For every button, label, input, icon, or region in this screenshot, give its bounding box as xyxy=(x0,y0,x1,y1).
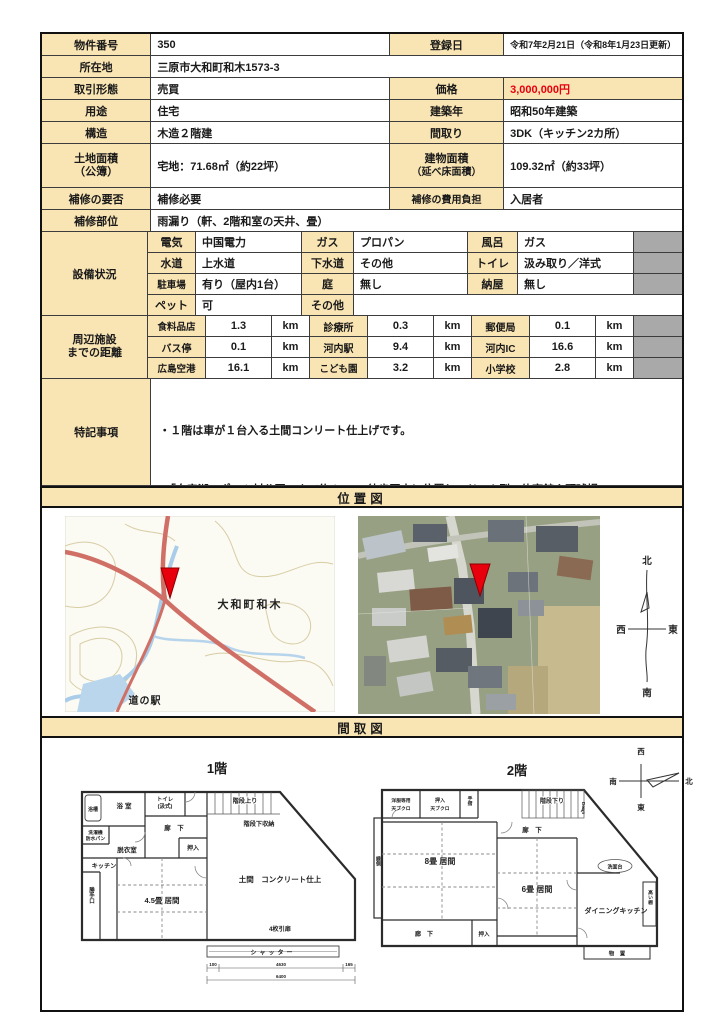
facility-unit: km xyxy=(434,358,472,379)
kitchen-label: キッチン xyxy=(92,863,117,870)
property-number-value: 350 xyxy=(151,34,390,56)
top-closet-label-line2: 天ブクロ xyxy=(430,805,449,812)
facility-name: バス停 xyxy=(148,337,206,358)
map-compass: 北 西 東 南 xyxy=(614,550,680,700)
hallway-label: 廊 下 xyxy=(164,823,184,832)
facility-unit: km xyxy=(596,337,634,358)
building-area-label-line2: （延べ床面積） xyxy=(411,166,481,179)
washer-label-line2: 防水パン xyxy=(86,835,106,842)
layout-label: 間取り xyxy=(390,122,504,144)
filler-cell xyxy=(634,232,682,253)
rail-label: 手摺 xyxy=(467,795,472,807)
table-row: 補修部位 雨漏り（軒、2階和室の天井、畳） xyxy=(42,210,682,232)
facility-name: 広島空港 xyxy=(148,358,206,379)
floor1-title: 1階 xyxy=(67,758,367,777)
facility-distance: 9.4 xyxy=(368,337,434,358)
dressing-room-label: 脱衣室 xyxy=(117,845,137,854)
sewer-label: 下水道 xyxy=(302,253,354,274)
pet-value: 可 xyxy=(196,295,302,316)
price-value: 3,000,000円 xyxy=(504,78,682,100)
building-area-label: 建物面積 （延べ床面積） xyxy=(390,144,504,188)
doma-label: 土間 コンクリート仕上 xyxy=(239,874,322,884)
facility-name: 食料品店 xyxy=(148,316,206,337)
shutter-label: シャッター xyxy=(250,949,295,957)
compass-north-label: 北 xyxy=(685,776,693,786)
structure-value: 木造２階建 xyxy=(151,122,390,144)
facility-unit: km xyxy=(272,316,310,337)
facility-unit: km xyxy=(434,316,472,337)
compass-south-label: 南 xyxy=(642,687,652,699)
other-label: その他 xyxy=(302,295,354,316)
price-label: 価格 xyxy=(390,78,504,100)
gas-value: プロパン xyxy=(354,232,468,253)
facility-distance: 16.6 xyxy=(530,337,596,358)
facility-distance: 2.8 xyxy=(530,358,596,379)
living-45-label: 4.5畳 居間 xyxy=(144,895,180,905)
compass-needle xyxy=(628,570,666,682)
table-row: 用途 住宅 建築年 昭和50年建築 xyxy=(42,100,682,122)
equipment-row: 水道 上水道 下水道 その他 トイレ 汲み取り／洋式 xyxy=(148,253,682,274)
facility-distance: 1.3 xyxy=(206,316,272,337)
filler-cell xyxy=(634,358,682,379)
notes-title: 特記事項 xyxy=(42,379,151,486)
address-value: 三原市大和町和木1573-3 xyxy=(151,56,682,78)
property-listing-page: 物件番号 350 登録日 令和7年2月21日（令和8年1月23日更新） 所在地 … xyxy=(0,0,724,1024)
equipment-title: 設備状況 xyxy=(42,232,148,316)
back-door-label: 勝手口 xyxy=(88,886,95,905)
equipment-row: ペット 可 その他 xyxy=(148,295,682,316)
roadside-station-label: 道の駅 xyxy=(129,694,162,707)
bath-label: 風呂 xyxy=(468,232,518,253)
table-row: 土地面積 （公簿） 宅地：71.68㎡（約22坪） 建物面積 （延べ床面積） 1… xyxy=(42,144,682,188)
equipment-grid: 電気 中国電力 ガス プロパン 風呂 ガス 水道 上水道 下水道 その他 トイレ… xyxy=(148,232,682,316)
land-area-label-line1: 土地面積 xyxy=(74,153,118,166)
storage-label: 物 置 xyxy=(609,950,626,958)
land-area-label: 土地面積 （公簿） xyxy=(42,144,151,188)
facilities-section: 周辺施設 までの距離 食料品店 1.3 km 診療所 0.3 km 郵便局 0.… xyxy=(42,316,682,379)
floor2-plan: 洋服等用 天ブクロ 押入 天ブクロ 手摺 階段下り Down 廊 下 8畳 居間… xyxy=(362,778,672,1010)
repair-cost-label: 補修の費用負担 xyxy=(390,188,504,210)
map-area-label: 大和町和木 xyxy=(218,597,283,611)
facility-distance: 0.1 xyxy=(206,337,272,358)
repair-part-label: 補修部位 xyxy=(42,210,151,232)
dim-100: 100 xyxy=(209,962,217,967)
filler-cell xyxy=(634,337,682,358)
facilities-grid: 食料品店 1.3 km 診療所 0.3 km 郵便局 0.1 km バス停 0.… xyxy=(148,316,682,379)
toilet-label-line2: (汲式) xyxy=(158,802,173,810)
compass-east-label: 東 xyxy=(667,624,678,636)
table-row: 取引形態 売買 価格 3,000,000円 xyxy=(42,78,682,100)
notes-section: 特記事項 ・１階は車が１台入る土間コンリート仕上げです。 ・「白竜湖スポーツ村公… xyxy=(42,379,682,486)
filler-cell xyxy=(634,316,682,337)
facilities-title: 周辺施設 までの距離 xyxy=(42,316,148,379)
usage-value: 住宅 xyxy=(151,100,390,122)
compass-west-label: 西 xyxy=(616,625,626,636)
washer-label-line1: 洗濯機 xyxy=(88,829,103,836)
toilet-value: 汲み取り／洋式 xyxy=(518,253,634,274)
land-area-label-line2: （公簿） xyxy=(74,166,118,179)
under-stairs-storage-label: 階段下収納 xyxy=(244,820,275,828)
repair-part-value: 雨漏り（軒、2階和室の天井、畳） xyxy=(151,210,682,232)
filler-cell xyxy=(634,274,682,295)
equipment-section: 設備状況 電気 中国電力 ガス プロパン 風呂 ガス 水道 上水道 下水道 その… xyxy=(42,232,682,316)
location-section-header: 位置図 xyxy=(40,486,684,508)
repair-need-label: 補修の要否 xyxy=(42,188,151,210)
transaction-type-value: 売買 xyxy=(151,78,390,100)
high-shelf-label: 高い棚 xyxy=(647,889,652,906)
bath-value: ガス xyxy=(518,232,634,253)
garden-label: 庭 xyxy=(302,274,354,295)
filler-cell xyxy=(634,253,682,274)
registration-date-value: 令和7年2月21日（令和8年1月23日更新） xyxy=(504,34,682,56)
veranda-label: 縁側 xyxy=(375,855,382,867)
sliding-door-label: 4枚引扉 xyxy=(269,925,291,933)
table-row: 構造 木造２階建 間取り 3DK（キッチン2カ所） xyxy=(42,122,682,144)
facility-row: バス停 0.1 km 河内駅 9.4 km 河内IC 16.6 km xyxy=(148,337,682,358)
closet-label: 押入 xyxy=(478,930,490,938)
facility-unit: km xyxy=(596,316,634,337)
property-info-table: 物件番号 350 登録日 令和7年2月21日（令和8年1月23日更新） 所在地 … xyxy=(40,32,684,488)
facilities-title-line2: までの距離 xyxy=(67,347,122,360)
water-value: 上水道 xyxy=(196,253,302,274)
parking-value: 有り（屋内1台） xyxy=(196,274,302,295)
bath-label: 浴室 xyxy=(117,801,134,810)
compass-north-label: 北 xyxy=(642,555,652,567)
build-year-value: 昭和50年建築 xyxy=(504,100,682,122)
gas-label: ガス xyxy=(302,232,354,253)
down-label: Down xyxy=(581,802,586,814)
facility-name: 小学校 xyxy=(472,358,530,379)
compass-west-label: 西 xyxy=(637,747,645,756)
transaction-type-label: 取引形態 xyxy=(42,78,151,100)
land-area-value: 宅地：71.68㎡（約22坪） xyxy=(151,144,390,188)
floor1-plan: 浴槽 浴室 トイレ (汲式) 洗濯機 防水パン 脱衣室 廊 下 押入 階段上り … xyxy=(67,782,367,1004)
repair-cost-value: 入居者 xyxy=(504,188,682,210)
facility-name: こども園 xyxy=(310,358,368,379)
facility-row: 食料品店 1.3 km 診療所 0.3 km 郵便局 0.1 km xyxy=(148,316,682,337)
building-area-value: 109.32㎡（約33坪） xyxy=(504,144,682,188)
facility-unit: km xyxy=(272,337,310,358)
electric-value: 中国電力 xyxy=(196,232,302,253)
facility-distance: 0.3 xyxy=(368,316,434,337)
pet-label: ペット xyxy=(148,295,196,316)
facilities-title-line1: 周辺施設 xyxy=(73,334,117,347)
address-label: 所在地 xyxy=(42,56,151,78)
registration-date-label: 登録日 xyxy=(390,34,504,56)
water-label: 水道 xyxy=(148,253,196,274)
layout-value: 3DK（キッチン2カ所） xyxy=(504,122,682,144)
electric-label: 電気 xyxy=(148,232,196,253)
location-map-area: 大和町和木 道の駅 xyxy=(40,506,684,718)
dim-6400: 6400 xyxy=(276,974,287,979)
table-row: 補修の要否 補修必要 補修の費用負担 入居者 xyxy=(42,188,682,210)
floorplan-area: 1階 2階 西 北 東 南 xyxy=(40,736,684,1012)
facility-name: 診療所 xyxy=(310,316,368,337)
aerial-photo xyxy=(358,516,600,714)
living-6-label: 6畳 居間 xyxy=(522,884,553,894)
parking-label: 駐車場 xyxy=(148,274,196,295)
table-row: 所在地 三原市大和町和木1573-3 xyxy=(42,56,682,78)
note-line: ・１階は車が１台入る土間コンリート仕上げです。 xyxy=(159,422,674,442)
barn-label: 納屋 xyxy=(468,274,518,295)
table-row: 物件番号 350 登録日 令和7年2月21日（令和8年1月23日更新） xyxy=(42,34,682,56)
repair-need-value: 補修必要 xyxy=(151,188,390,210)
topographic-map: 大和町和木 道の駅 xyxy=(65,516,335,712)
facility-distance: 0.1 xyxy=(530,316,596,337)
property-number-label: 物件番号 xyxy=(42,34,151,56)
usage-label: 用途 xyxy=(42,100,151,122)
closet-label: 押入 xyxy=(187,844,199,852)
barn-value: 無し xyxy=(518,274,634,295)
facility-unit: km xyxy=(434,337,472,358)
build-year-label: 建築年 xyxy=(390,100,504,122)
dim-165: 165 xyxy=(345,962,353,967)
notes-content: ・１階は車が１台入る土間コンリート仕上げです。 ・「白竜湖スポーツ村公園」まで約… xyxy=(151,379,682,486)
wardrobe-label-line1: 洋服等用 xyxy=(391,797,410,804)
facility-distance: 3.2 xyxy=(368,358,434,379)
stairs-down-label: 階段下り xyxy=(540,797,564,805)
facility-name: 郵便局 xyxy=(472,316,530,337)
wardrobe-label-line2: 天ブクロ xyxy=(391,805,410,812)
hall-top-label: 廊 下 xyxy=(522,825,542,834)
facility-name: 河内IC xyxy=(472,337,530,358)
top-closet-label-line1: 押入 xyxy=(435,797,445,804)
bathtub-label: 浴槽 xyxy=(88,806,98,813)
living-8-label: 8畳 居間 xyxy=(425,856,456,866)
floorplan-section-header: 間取図 xyxy=(40,716,684,738)
facility-unit: km xyxy=(596,358,634,379)
other-value xyxy=(354,295,682,316)
washstand-label: 洗面台 xyxy=(607,864,622,871)
dining-kitchen-label: ダイニングキッチン xyxy=(585,906,648,915)
facility-distance: 16.1 xyxy=(206,358,272,379)
equipment-row: 電気 中国電力 ガス プロパン 風呂 ガス xyxy=(148,232,682,253)
equipment-row: 駐車場 有り（屋内1台） 庭 無し 納屋 無し xyxy=(148,274,682,295)
dim-4630: 4630 xyxy=(276,962,287,967)
garden-value: 無し xyxy=(354,274,468,295)
hall-bottom-label: 廊 下 xyxy=(415,930,433,938)
sewer-value: その他 xyxy=(354,253,468,274)
facility-unit: km xyxy=(272,358,310,379)
toilet-label: トイレ xyxy=(468,253,518,274)
structure-label: 構造 xyxy=(42,122,151,144)
stairs-up-label: 階段上り xyxy=(233,797,258,805)
building-area-label-line1: 建物面積 xyxy=(424,153,468,166)
toilet-label-line1: トイレ xyxy=(157,796,174,803)
facility-name: 河内駅 xyxy=(310,337,368,358)
facility-row: 広島空港 16.1 km こども園 3.2 km 小学校 2.8 km xyxy=(148,358,682,379)
